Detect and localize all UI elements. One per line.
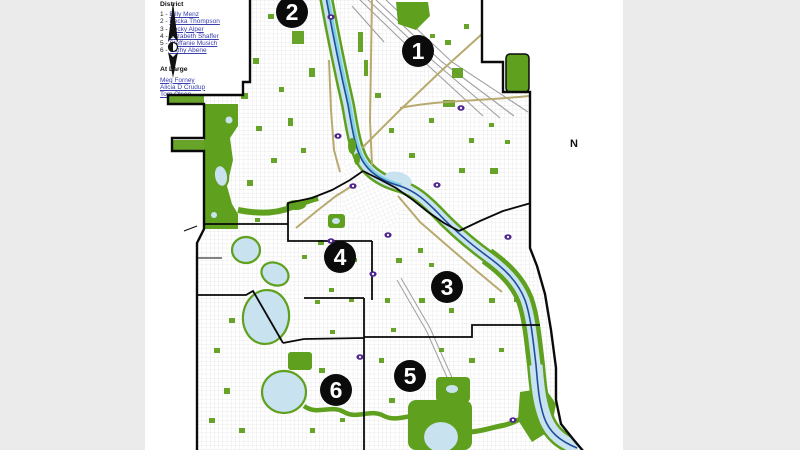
page: District 1 - Billy Menz2 - Becka Thompso… [0,0,800,450]
district-5-marker: 5 [394,360,426,392]
district-6-marker: 6 [320,374,352,406]
district-4-marker: 4 [324,241,356,273]
map: N 123456 [165,0,585,450]
content-area: District 1 - Billy Menz2 - Becka Thompso… [145,0,623,450]
north-arrow-icon [165,0,181,80]
map-image [165,0,585,450]
district-3-marker: 3 [431,271,463,303]
north-label: N [566,138,582,150]
district-1-marker: 1 [402,35,434,67]
